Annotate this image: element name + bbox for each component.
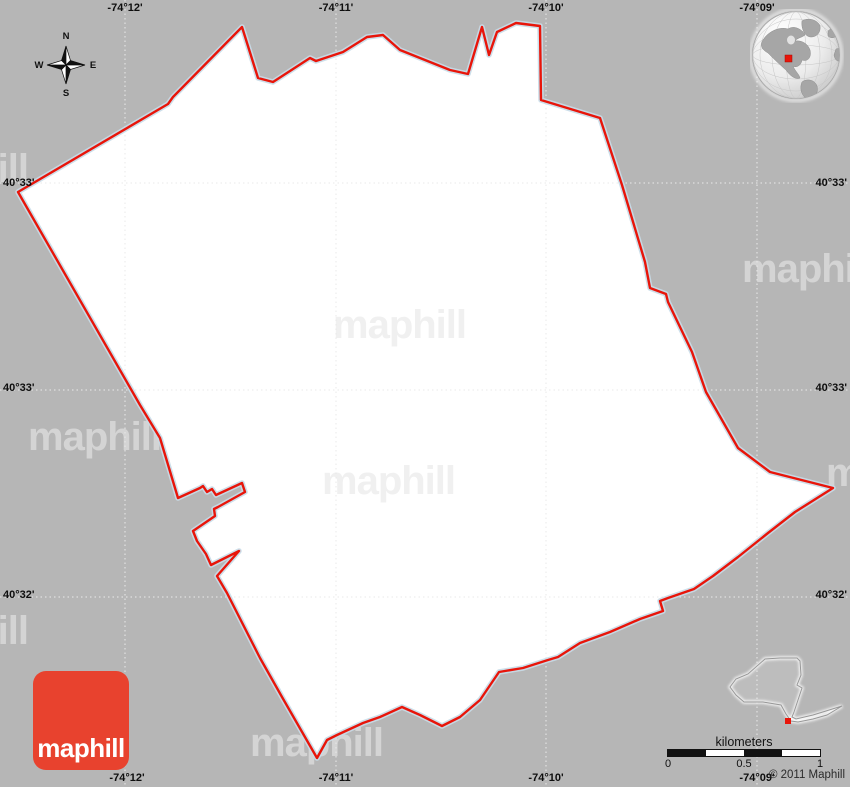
coord-label-bottom-2: -74°11' [319, 772, 354, 784]
coord-label-left-3: 40°32' [3, 589, 35, 601]
scale-bar [667, 749, 821, 757]
state-locator[interactable] [723, 648, 850, 740]
compass-label-s: S [63, 88, 69, 99]
scale-bar-unit-label: kilometers [716, 735, 773, 749]
coord-label-right-2: 40°33' [816, 382, 848, 394]
coord-label-top-1: -74°12' [107, 2, 142, 14]
coord-label-top-4: -74°09' [739, 2, 774, 14]
hudson-bay [787, 36, 795, 45]
scale-tick-0: 0 [665, 758, 671, 770]
globe-locator[interactable] [750, 9, 844, 103]
coord-label-bottom-3: -74°10' [528, 772, 563, 784]
scale-tick-05: 0.5 [736, 758, 751, 770]
coord-label-right-3: 40°32' [816, 589, 848, 601]
watermark: maphill [322, 459, 455, 503]
watermark: maphill [333, 303, 466, 347]
coord-label-right-1: 40°33' [816, 177, 848, 189]
copyright-notice: © 2011 Maphill [769, 769, 845, 781]
compass-rose: N E S W [28, 26, 104, 102]
coord-label-left-2: 40°33' [3, 382, 35, 394]
scale-bar-segment [744, 750, 782, 756]
watermark: maphill [742, 247, 850, 291]
state-outline [730, 658, 842, 722]
map-canvas: maphill maphill maphill maphill maphill … [0, 0, 850, 787]
state-location-marker [785, 718, 791, 724]
compass-label-w: W [35, 60, 44, 71]
coord-label-top-3: -74°10' [528, 2, 563, 14]
coord-label-bottom-1: -74°12' [109, 772, 144, 784]
scale-bar-segment [782, 750, 820, 756]
watermark: maphill [28, 415, 161, 459]
compass-label-n: N [63, 31, 70, 42]
scale-bar-segment [706, 750, 744, 756]
compass-label-e: E [90, 60, 96, 71]
maphill-logo-text: maphill [37, 735, 125, 761]
coord-label-left-1: 40°33' [3, 177, 35, 189]
scale-bar-segment [668, 750, 706, 756]
globe-location-marker [785, 55, 792, 62]
maphill-logo[interactable]: maphill [33, 671, 129, 770]
watermark: maphill [0, 609, 28, 653]
coord-label-top-2: -74°11' [319, 2, 354, 14]
